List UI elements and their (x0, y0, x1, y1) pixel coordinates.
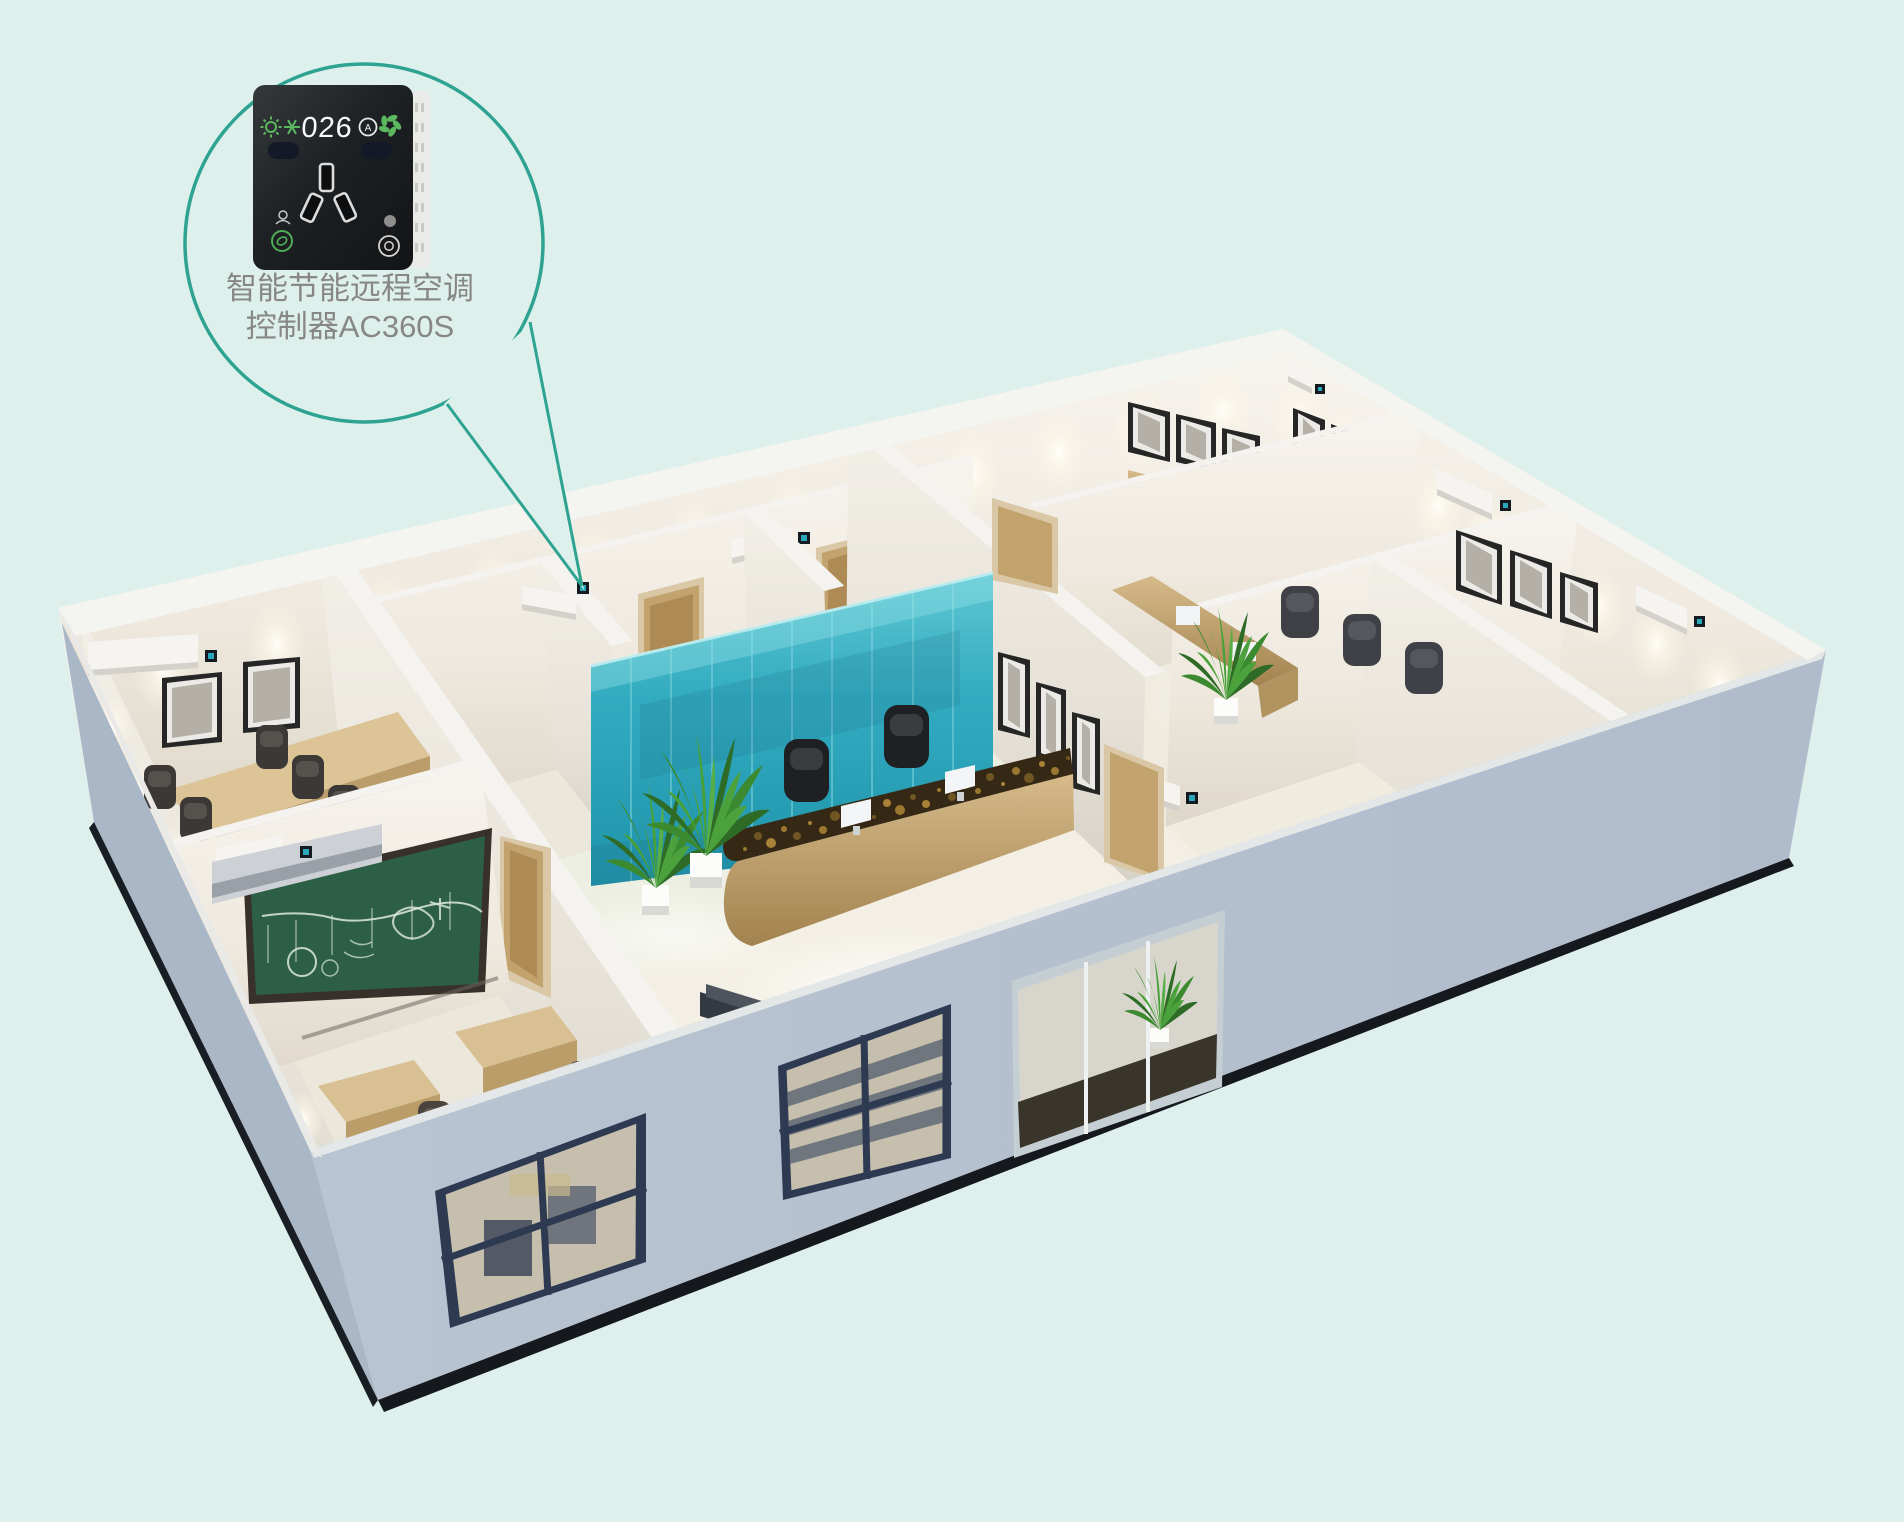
svg-text:控制器AC360S: 控制器AC360S (246, 309, 454, 344)
svg-text:智能节能远程空调: 智能节能远程空调 (226, 271, 474, 306)
svg-text:026: 026 (300, 112, 354, 144)
svg-text:A: A (365, 123, 372, 134)
